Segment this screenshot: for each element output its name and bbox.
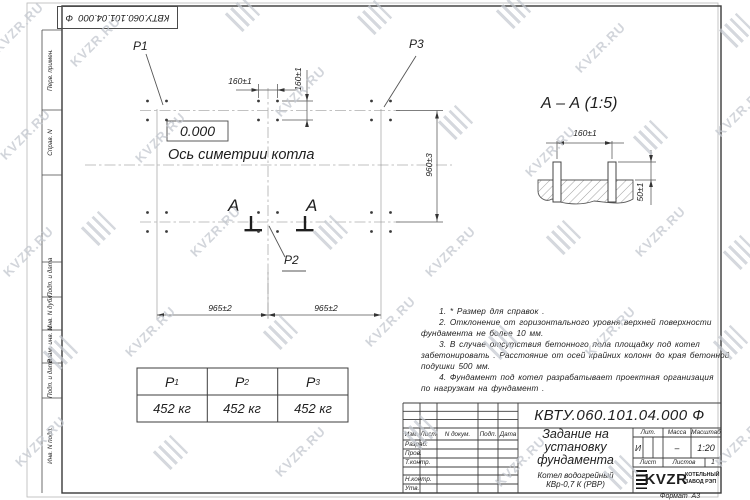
sheets-total-label: Листов xyxy=(663,458,705,467)
dim-span-right: 965±2 xyxy=(296,303,356,313)
col-n-doc: N докум. xyxy=(437,428,478,440)
load-point-p2-label: P2 xyxy=(284,253,299,267)
dimension-arrowhead xyxy=(649,180,653,187)
note-line: 3. В случае отсутствия бетонного пола пл… xyxy=(421,339,721,350)
titleblock-product: Котел водогрейный КВр-0,7 К (РВР) xyxy=(518,467,633,493)
anchor-bolt xyxy=(165,100,168,103)
titleblock-document-title: Задание на установку фундамента xyxy=(518,428,633,467)
company-line2: ЗАВОД РЭП xyxy=(685,479,719,486)
dim-bolt-spacing-h: 160±1 xyxy=(222,76,258,86)
col-list: Лист xyxy=(420,428,437,440)
anchor-bolt xyxy=(146,100,149,103)
load-table-header-p2: P2 xyxy=(207,368,277,395)
p2-subscript: 2 xyxy=(244,377,249,387)
anchor-bolt xyxy=(165,230,168,233)
company-name: КОТЕЛЬНЫЙ ЗАВОД РЭП xyxy=(685,472,719,485)
p1-subscript: 1 xyxy=(174,377,179,387)
row-nkontr: Н.контр. xyxy=(405,476,432,483)
sheets-total-value: 1 xyxy=(705,458,721,467)
massa-label: Масса xyxy=(663,428,691,437)
anchor-bolt-dots xyxy=(146,100,392,233)
top-designation-stamp: КВТУ.060.101.04.000 Ф xyxy=(57,6,178,29)
strip-label-inv-podl: Инв. N подл. xyxy=(47,398,54,493)
elevation-mark: 0.000 xyxy=(167,121,228,141)
dimension-arrowhead xyxy=(278,88,285,92)
anchor-bolt xyxy=(276,100,279,103)
kvzr-logo-text: KVZR xyxy=(648,468,684,490)
load-table-value-p1: 452 кг xyxy=(137,395,207,422)
titleblock-designation: КВТУ.060.101.04.000 Ф xyxy=(518,403,721,428)
anchor-bolt xyxy=(165,211,168,214)
anchor-bolt xyxy=(389,100,392,103)
notes-block: 1. * Размер для справок . 2. Отклонение … xyxy=(421,306,721,394)
masshtab-value: 1:20 xyxy=(691,437,721,458)
dim-bolt-spacing-v: 160±1 xyxy=(293,61,303,97)
anchor-bolt xyxy=(370,100,373,103)
col-podp: Подп. xyxy=(478,428,498,440)
p1-symbol: P xyxy=(165,374,174,390)
dimension-arrowhead xyxy=(435,112,439,119)
strip-label-podp-data-1: Подп. и дата xyxy=(47,262,54,297)
dimension-arrowhead xyxy=(157,313,164,317)
anchor-bolt xyxy=(389,211,392,214)
anchor-bolt xyxy=(276,119,279,122)
p3-subscript: 3 xyxy=(315,377,320,387)
anchor-bolt xyxy=(146,211,149,214)
section-dim-bolt-spacing: 160±1 xyxy=(563,128,607,138)
load-table-header-p3: P3 xyxy=(278,368,348,395)
masshtab-label: Масштаб xyxy=(691,428,721,437)
load-table-value-p3: 452 кг xyxy=(278,395,348,422)
anchor-bolt xyxy=(146,230,149,233)
top-designation-text: КВТУ.060.101.04.000 Ф xyxy=(66,12,170,23)
concrete-block xyxy=(538,180,633,204)
dimension-arrowhead xyxy=(649,155,653,162)
anchor-bolt xyxy=(257,230,260,233)
load-point-p3-label: P3 xyxy=(409,37,424,51)
boiler-axis-label: Ось симетрии котла xyxy=(168,147,314,163)
anchor-bolt xyxy=(370,230,373,233)
anchor-bolt xyxy=(370,119,373,122)
note-line: подушки 500 мм. xyxy=(421,361,721,372)
row-razrab: Разраб. xyxy=(405,441,428,448)
anchor-bolt xyxy=(146,119,149,122)
section-letter-left: A xyxy=(228,196,239,216)
massa-value: – xyxy=(663,437,691,458)
note-line: фундамента не более 10 мм. xyxy=(421,328,721,339)
col-data: Дата xyxy=(498,428,518,440)
note-line: забетонировать . Расстояние от осей край… xyxy=(421,350,721,361)
drawing-sheet: KVZR.RUKVZR.RUKVZR.RUKVZR.RUKVZR.RUKVZR.… xyxy=(0,0,750,500)
strip-label-sprav-n: Справ. N xyxy=(47,110,54,175)
dimension-arrowhead xyxy=(261,313,268,317)
anchor-bolt xyxy=(370,211,373,214)
format-note: Формат А3 xyxy=(645,492,715,500)
section-letter-right: A xyxy=(306,196,317,216)
anchor-bolt xyxy=(276,211,279,214)
dimension-arrowhead xyxy=(305,94,309,101)
row-prov: Пров. xyxy=(405,450,422,457)
section-dim-protrusion: 50±1 xyxy=(635,176,645,208)
load-table-header-p1: P1 xyxy=(137,368,207,395)
dimension-arrowhead xyxy=(252,88,259,92)
note-line: 1. * Размер для справок . xyxy=(421,306,721,317)
anchor-stud-left xyxy=(553,162,561,202)
load-table-value-p2: 452 кг xyxy=(207,395,277,422)
section-title: А – А (1:5) xyxy=(541,95,617,113)
lit-label: Лит. xyxy=(633,428,663,437)
dimension-arrowhead xyxy=(305,120,309,127)
load-point-p1-label: P1 xyxy=(133,39,148,53)
dimension-arrowhead xyxy=(605,141,612,145)
note-line: 2. Отклонение от горизонтального уровня … xyxy=(421,317,721,328)
anchor-stud-right xyxy=(608,162,616,202)
dim-row-spacing: 960±3 xyxy=(424,145,434,185)
note-line: 4. Фундамент под котел разрабатывает про… xyxy=(421,372,721,383)
anchor-bolt xyxy=(276,230,279,233)
sheet-no-label: Лист xyxy=(633,458,663,467)
dimension-arrowhead xyxy=(268,313,275,317)
strip-label-podp-data-2: Подп. и дата xyxy=(47,363,54,398)
p3-symbol: P xyxy=(306,374,315,390)
dim-span-left: 965±2 xyxy=(190,303,250,313)
note-line: по нагрузкам на фундамент . xyxy=(421,383,721,394)
anchor-bolt xyxy=(257,211,260,214)
anchor-bolt xyxy=(257,100,260,103)
dimension-arrowhead xyxy=(557,141,564,145)
company-line1: КОТЕЛЬНЫЙ xyxy=(685,472,719,479)
anchor-bolt xyxy=(389,230,392,233)
dimension-arrowhead xyxy=(374,313,381,317)
anchor-bolt xyxy=(257,119,260,122)
strip-label-perv-primen: Перв. примен. xyxy=(47,30,54,110)
lit-value: И xyxy=(633,437,643,458)
p2-symbol: P xyxy=(235,374,244,390)
anchor-bolt xyxy=(389,119,392,122)
plan-view xyxy=(85,54,452,319)
col-izm: Изм. xyxy=(403,428,420,440)
row-tkontr: Т.контр. xyxy=(405,459,430,466)
dimension-arrowhead xyxy=(435,214,439,221)
row-utv: Утв. xyxy=(405,485,419,492)
